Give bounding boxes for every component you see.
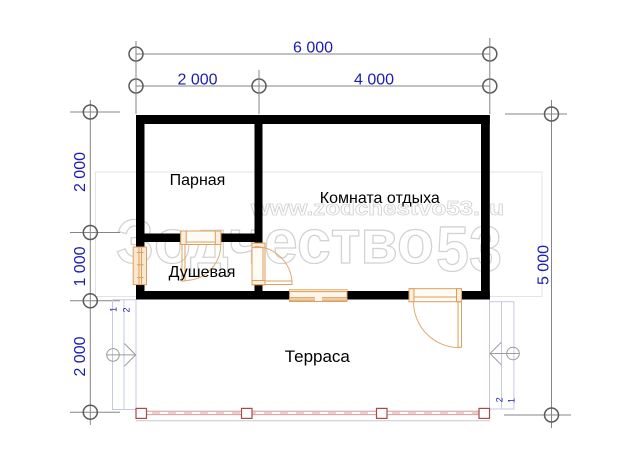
svg-text:2: 2	[494, 397, 504, 402]
svg-text:53: 53	[436, 213, 502, 285]
svg-text:1: 1	[507, 398, 517, 403]
svg-text:1 000: 1 000	[72, 246, 89, 286]
svg-text:2 000: 2 000	[72, 336, 89, 376]
svg-text:1: 1	[108, 307, 118, 312]
svg-text:2: 2	[122, 307, 132, 312]
svg-text:4 000: 4 000	[354, 72, 394, 89]
svg-text:2 000: 2 000	[72, 152, 89, 192]
svg-text:Парная: Парная	[170, 172, 226, 189]
svg-text:6 000: 6 000	[293, 40, 333, 57]
svg-text:Зодчество: Зодчество	[116, 208, 434, 277]
svg-text:Терраса: Терраса	[285, 347, 351, 366]
svg-text:Душевая: Душевая	[169, 264, 236, 281]
svg-text:5 000: 5 000	[536, 245, 553, 285]
svg-text:2 000: 2 000	[177, 72, 217, 89]
svg-text:Комната отдыха: Комната отдыха	[320, 190, 440, 207]
